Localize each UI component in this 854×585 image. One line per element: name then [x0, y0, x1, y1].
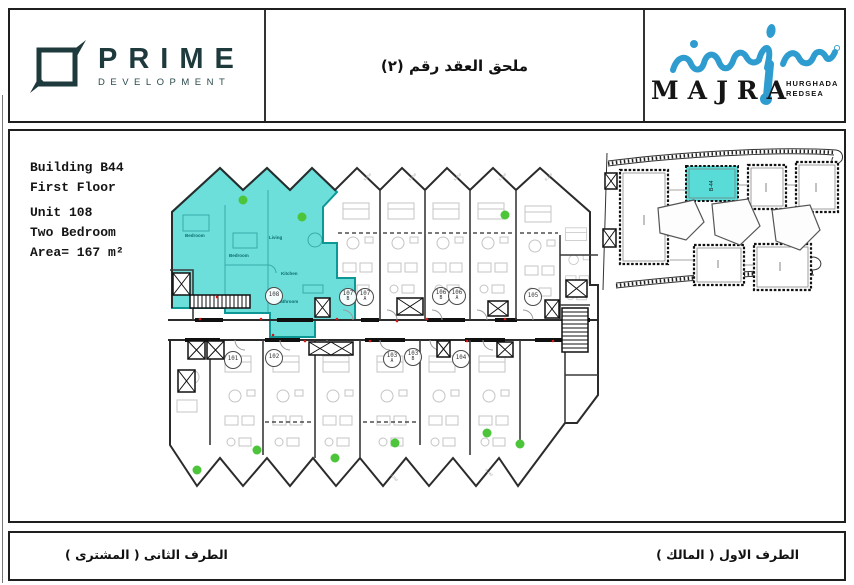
majra-location-line1: HURGHADA: [786, 79, 839, 88]
majra-script-wave: [673, 47, 835, 69]
unit-label-102: 102: [265, 349, 283, 367]
footer-party-first: الطرف الاول ( المالك ): [656, 533, 799, 579]
scan-edge-line: [2, 95, 3, 583]
unit-label-107a: 107A: [356, 288, 374, 306]
floor-plan-drawing: 5.050 5.050 5.050 5.050 0.240 0.240 0.20…: [165, 145, 605, 520]
site-ponds: [658, 199, 820, 250]
header: PRIME DEVELOPMENT ملحق العقد رقم (٢) MAJ…: [8, 8, 846, 123]
site-highlight-building: B-44: [686, 166, 738, 201]
unit-label-103b: 103B: [404, 348, 422, 366]
room-label-bedroom1: Bedroom: [185, 233, 205, 238]
document-title-cell: ملحق العقد رقم (٢): [264, 10, 645, 121]
unit-info-building: Building B44: [30, 158, 124, 178]
majra-location-line2: REDSEA: [786, 89, 824, 98]
prime-subtitle: DEVELOPMENT: [98, 77, 245, 88]
staircase-right: [562, 308, 588, 352]
prime-logo-icon: [30, 37, 86, 95]
unit-label-104: 104: [452, 350, 470, 368]
unit-label-105: 105: [524, 288, 542, 306]
unit-info-area: Area= 167 m²: [30, 243, 124, 263]
majra-logo-image: MAJRA HURGHADA REDSEA: [649, 14, 841, 118]
site-highlight-label: B-44: [709, 180, 715, 191]
prime-logo: PRIME DEVELOPMENT: [10, 10, 264, 121]
unit-label-103a: 103A: [383, 350, 401, 368]
site-plan: B-44: [600, 140, 850, 300]
majra-logo: MAJRA HURGHADA REDSEA: [645, 10, 844, 121]
staircase-left: [190, 295, 250, 308]
unit-info-block: Building B44 First Floor Unit 108 Two Be…: [30, 158, 124, 263]
majra-wordmark: MAJRA: [651, 76, 795, 105]
unit-info-floor: First Floor: [30, 178, 124, 198]
unit-info-type: Two Bedroom: [30, 223, 124, 243]
room-label-kitchen: Kitchen: [281, 271, 298, 276]
document-title: ملحق العقد رقم (٢): [381, 57, 528, 75]
unit-label-107b: 107B: [339, 288, 357, 306]
site-plan-drawing: B-44: [600, 140, 850, 300]
furniture-bottom-units: [177, 356, 509, 446]
prime-name: PRIME: [98, 44, 245, 74]
room-label-bedroom2: Bedroom: [229, 253, 249, 258]
unit-label-101: 101: [224, 351, 242, 369]
unit-info-unit: Unit 108: [30, 203, 124, 223]
footer: الطرف الثانى ( المشترى ) الطرف الاول ( ا…: [8, 531, 846, 581]
floor-plan: 5.050 5.050 5.050 5.050 0.240 0.240 0.20…: [165, 145, 605, 520]
unit-label-106a: 106A: [448, 287, 466, 305]
room-label-living: Living: [269, 235, 282, 240]
corridor: [168, 320, 598, 340]
unit-label-108: 108: [265, 287, 283, 305]
footer-party-second: الطرف الثانى ( المشترى ): [65, 533, 228, 579]
